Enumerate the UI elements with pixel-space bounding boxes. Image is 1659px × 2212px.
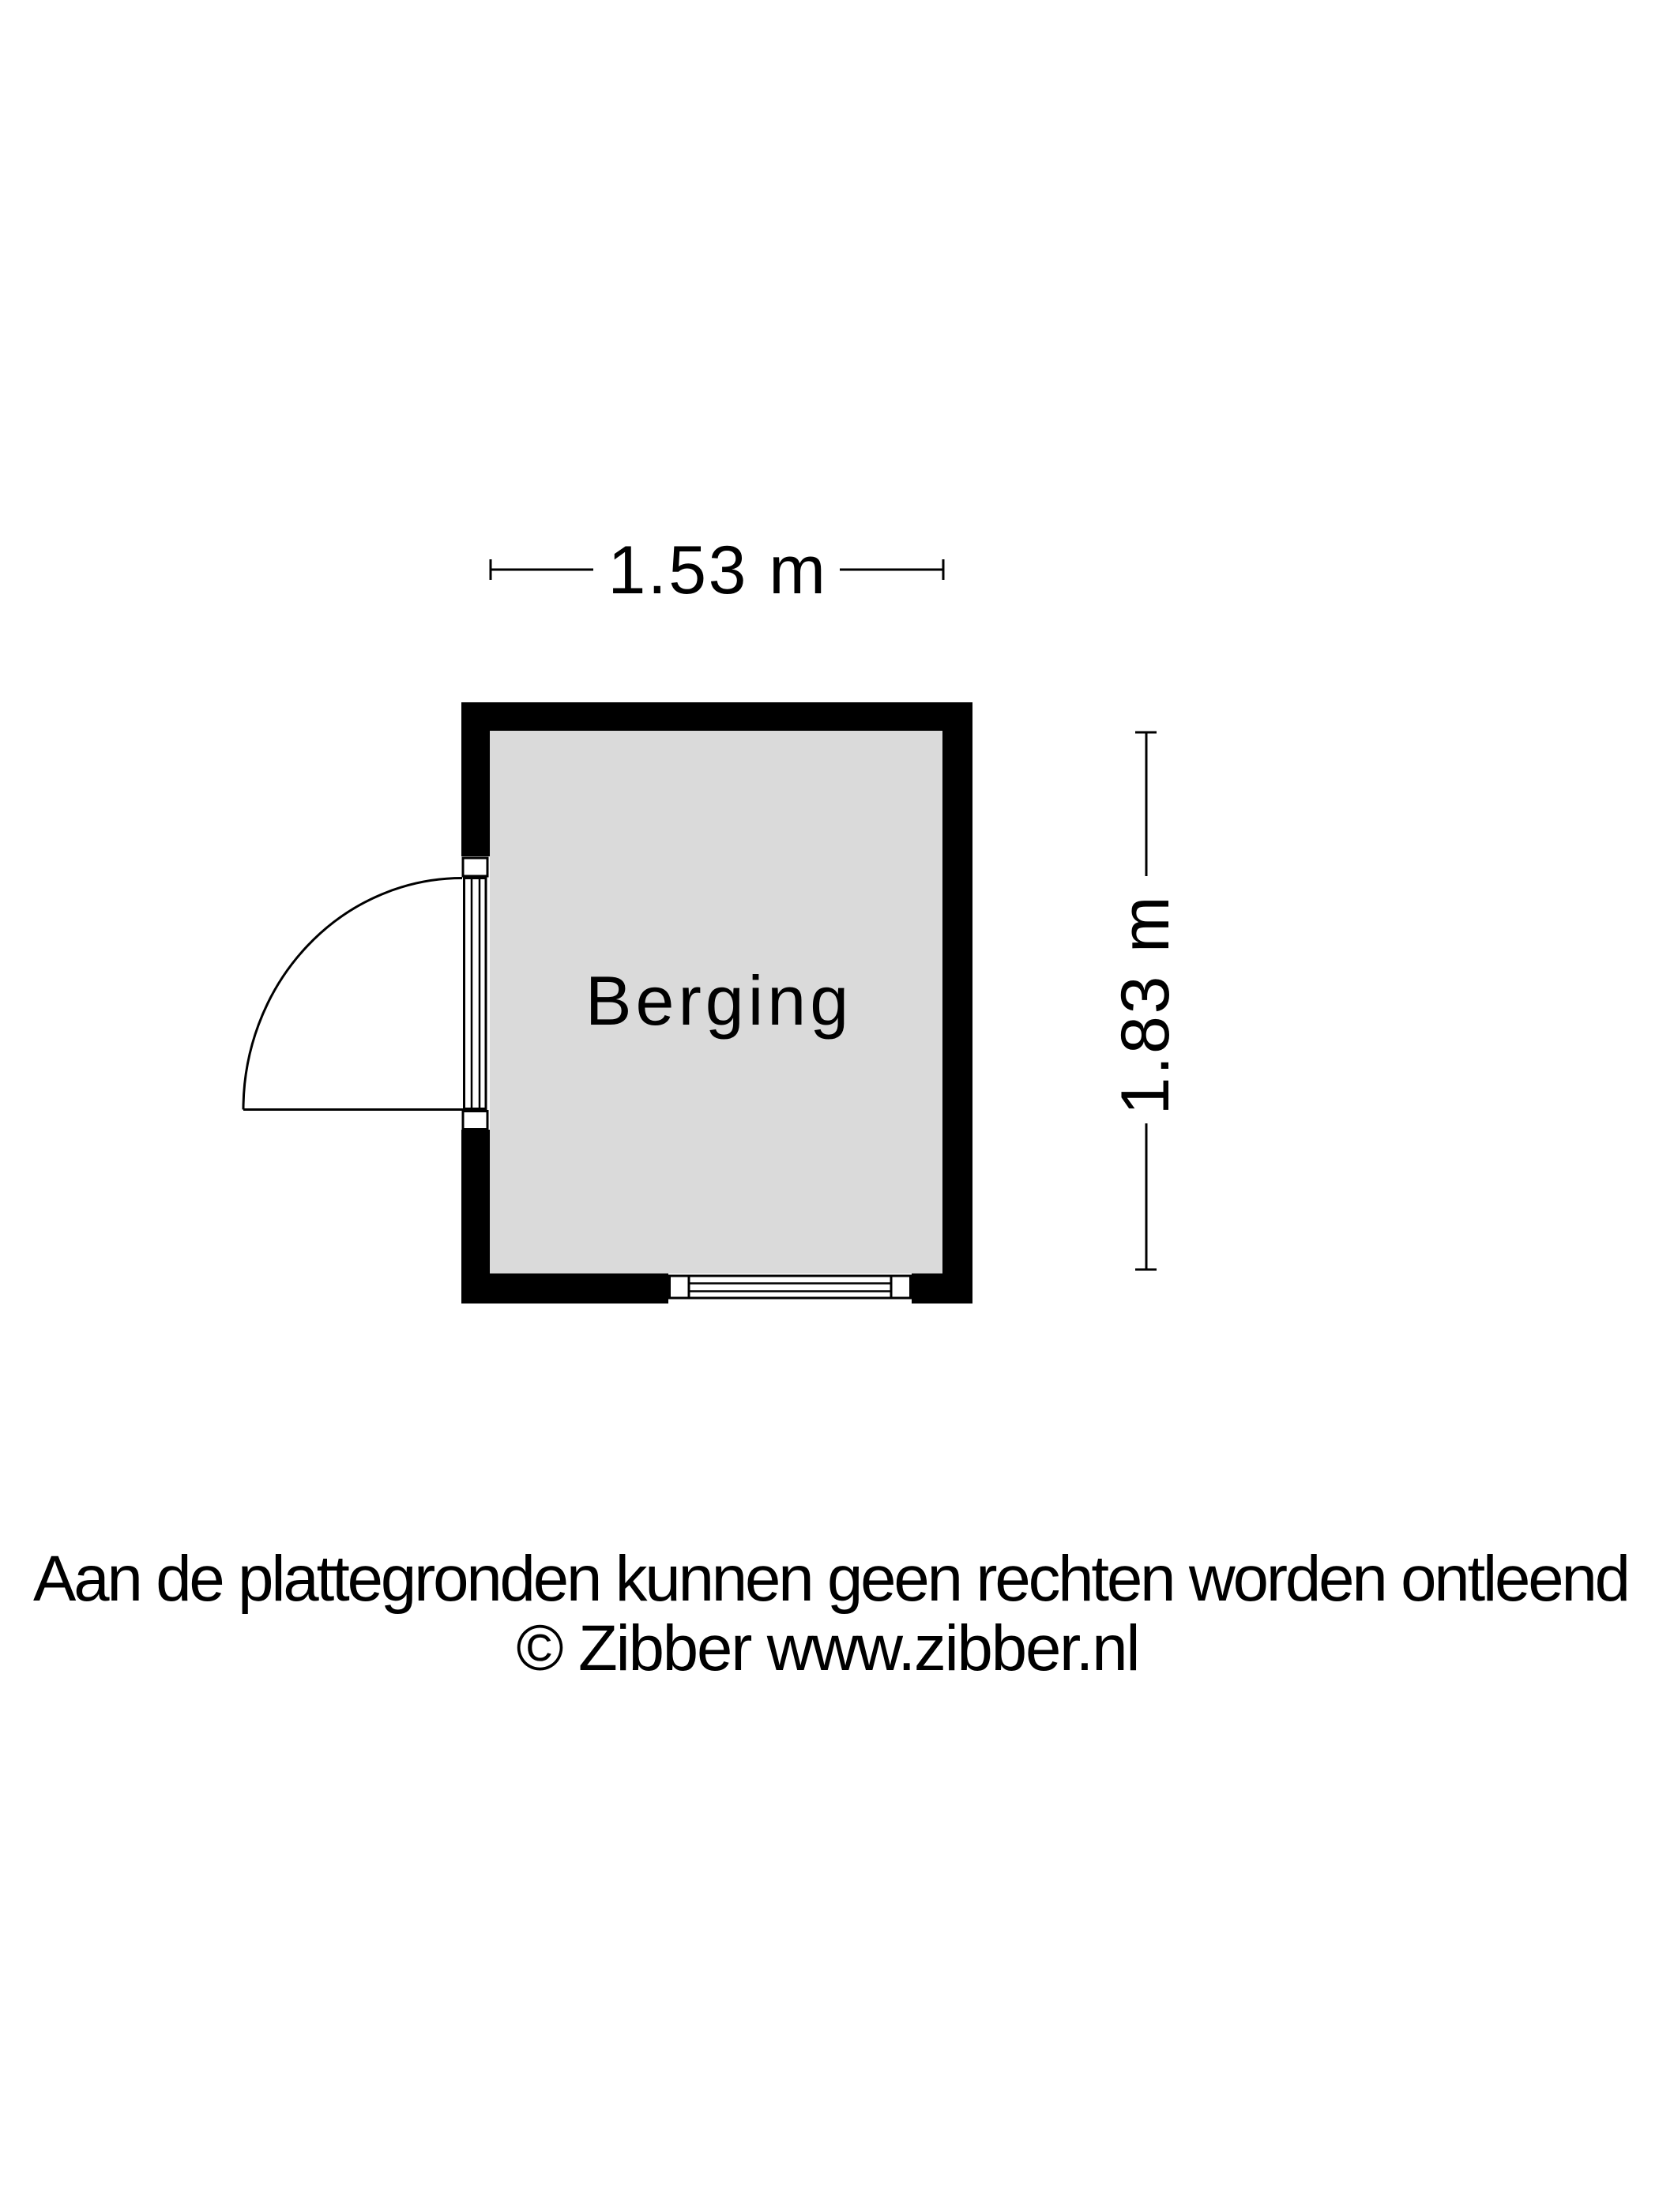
- svg-text:1.53 m: 1.53 m: [608, 532, 828, 608]
- svg-text:Berging: Berging: [585, 961, 852, 1040]
- svg-text:Aan de plattegronden kunnen ge: Aan de plattegronden kunnen geen rechten…: [33, 1543, 1631, 1615]
- svg-text:© Zibber www.zibber.nl: © Zibber www.zibber.nl: [517, 1612, 1141, 1684]
- svg-text:1.83 m: 1.83 m: [1108, 894, 1183, 1115]
